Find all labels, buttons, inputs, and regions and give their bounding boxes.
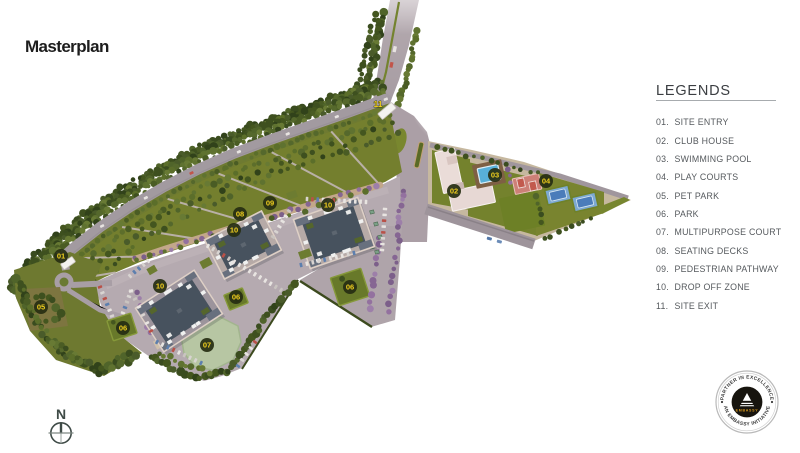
svg-text:06: 06 xyxy=(346,283,354,292)
svg-text:10: 10 xyxy=(324,201,332,210)
svg-text:06: 06 xyxy=(232,293,240,302)
svg-text:11: 11 xyxy=(374,99,383,109)
svg-text:07: 07 xyxy=(203,341,211,350)
svg-text:05: 05 xyxy=(37,303,45,312)
svg-text:10: 10 xyxy=(230,226,238,235)
svg-text:09: 09 xyxy=(266,199,274,208)
svg-text:EMBASSY: EMBASSY xyxy=(736,409,759,413)
svg-text:08: 08 xyxy=(236,210,244,219)
svg-text:04: 04 xyxy=(542,177,551,186)
svg-text:06: 06 xyxy=(119,324,127,333)
svg-text:02: 02 xyxy=(450,187,458,196)
svg-text:03: 03 xyxy=(491,171,499,180)
svg-text:10: 10 xyxy=(156,282,164,291)
svg-text:N: N xyxy=(56,406,66,422)
svg-text:01: 01 xyxy=(57,252,65,261)
